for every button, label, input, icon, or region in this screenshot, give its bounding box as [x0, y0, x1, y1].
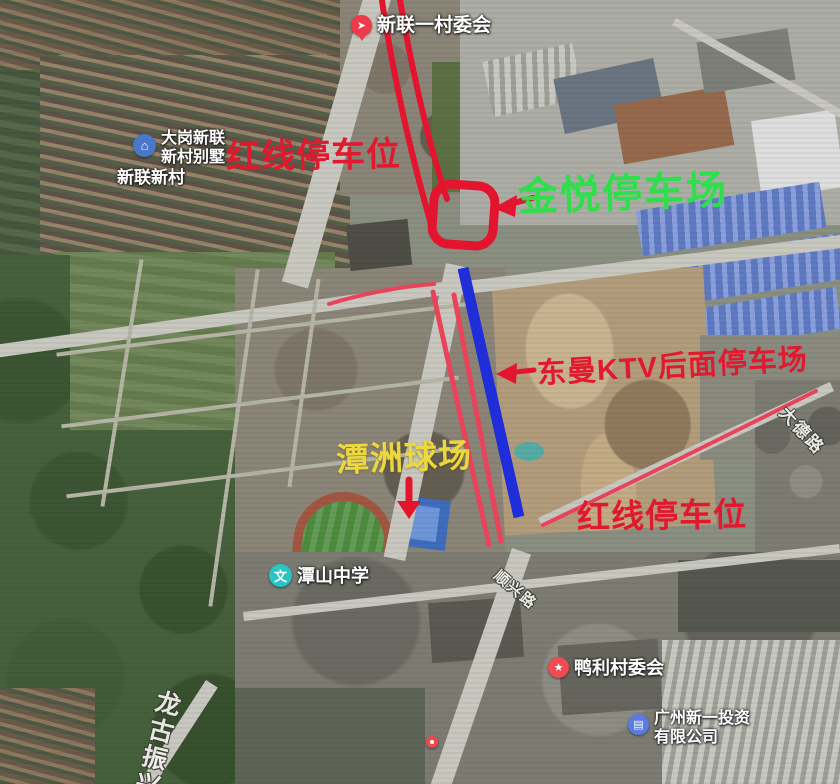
- villa-line1: 大岗新联: [161, 130, 225, 147]
- annotation-overlay: [0, 0, 840, 784]
- poi-label: 新联新村: [117, 168, 185, 188]
- poi-tanshan-school[interactable]: 文 潭山中学: [269, 564, 369, 587]
- poi-label: 广州新一投资 有限公司: [654, 710, 750, 748]
- poi-xinlian-village[interactable]: 新联新村: [117, 168, 185, 188]
- village-committee-pin-icon: ➤: [351, 15, 372, 36]
- school-icon: 文: [269, 564, 292, 587]
- poi-label: 新联一村委会: [377, 15, 491, 37]
- poi-yali-committee[interactable]: ★ 鸭利村委会: [548, 657, 664, 679]
- ktv-arrow-head: [496, 363, 517, 384]
- company-glyph: ▤: [633, 718, 643, 731]
- poi-xinlian-committee[interactable]: ➤ 新联一村委会: [351, 15, 491, 37]
- company-line2: 有限公司: [654, 729, 718, 746]
- star-glyph: ★: [554, 661, 564, 674]
- annotation-tanzhou-field: 潭洲球场: [335, 439, 472, 477]
- annotation-jinyue-parking: 金悦停车场: [517, 170, 728, 217]
- building-icon: ⌂: [133, 134, 156, 157]
- school-glyph: 文: [274, 566, 287, 585]
- tanzhou-arrow-head: [397, 501, 421, 519]
- small-pin-icon[interactable]: [426, 736, 438, 748]
- poi-label: 潭山中学: [297, 566, 369, 587]
- building-glyph: ⌂: [141, 138, 149, 153]
- company-icon: ▤: [628, 714, 649, 735]
- pin-dot: [430, 740, 434, 744]
- annotation-redline-bottom: 红线停车位: [577, 498, 748, 534]
- poi-label: 鸭利村委会: [574, 658, 664, 679]
- villa-line2: 新村别墅: [161, 149, 225, 166]
- star-pin-icon: ★: [548, 657, 569, 678]
- pin-tail: [358, 35, 366, 41]
- satellite-map[interactable]: 红线停车位 金悦停车场 东曼KTV后面停车场 潭洲球场 红线停车位 ➤ 新联一村…: [0, 0, 840, 784]
- redline-junction-west: [329, 284, 434, 304]
- annotation-redline-top: 红线停车位: [226, 137, 402, 174]
- jinyue-parking-circle: [431, 183, 496, 247]
- poi-dagang-villa[interactable]: ⌂ 大岗新联 新村别墅: [133, 130, 225, 168]
- poi-label: 大岗新联 新村别墅: [161, 130, 225, 168]
- poi-guangzhou-investment[interactable]: ▤ 广州新一投资 有限公司: [628, 710, 750, 748]
- company-line1: 广州新一投资: [654, 710, 750, 727]
